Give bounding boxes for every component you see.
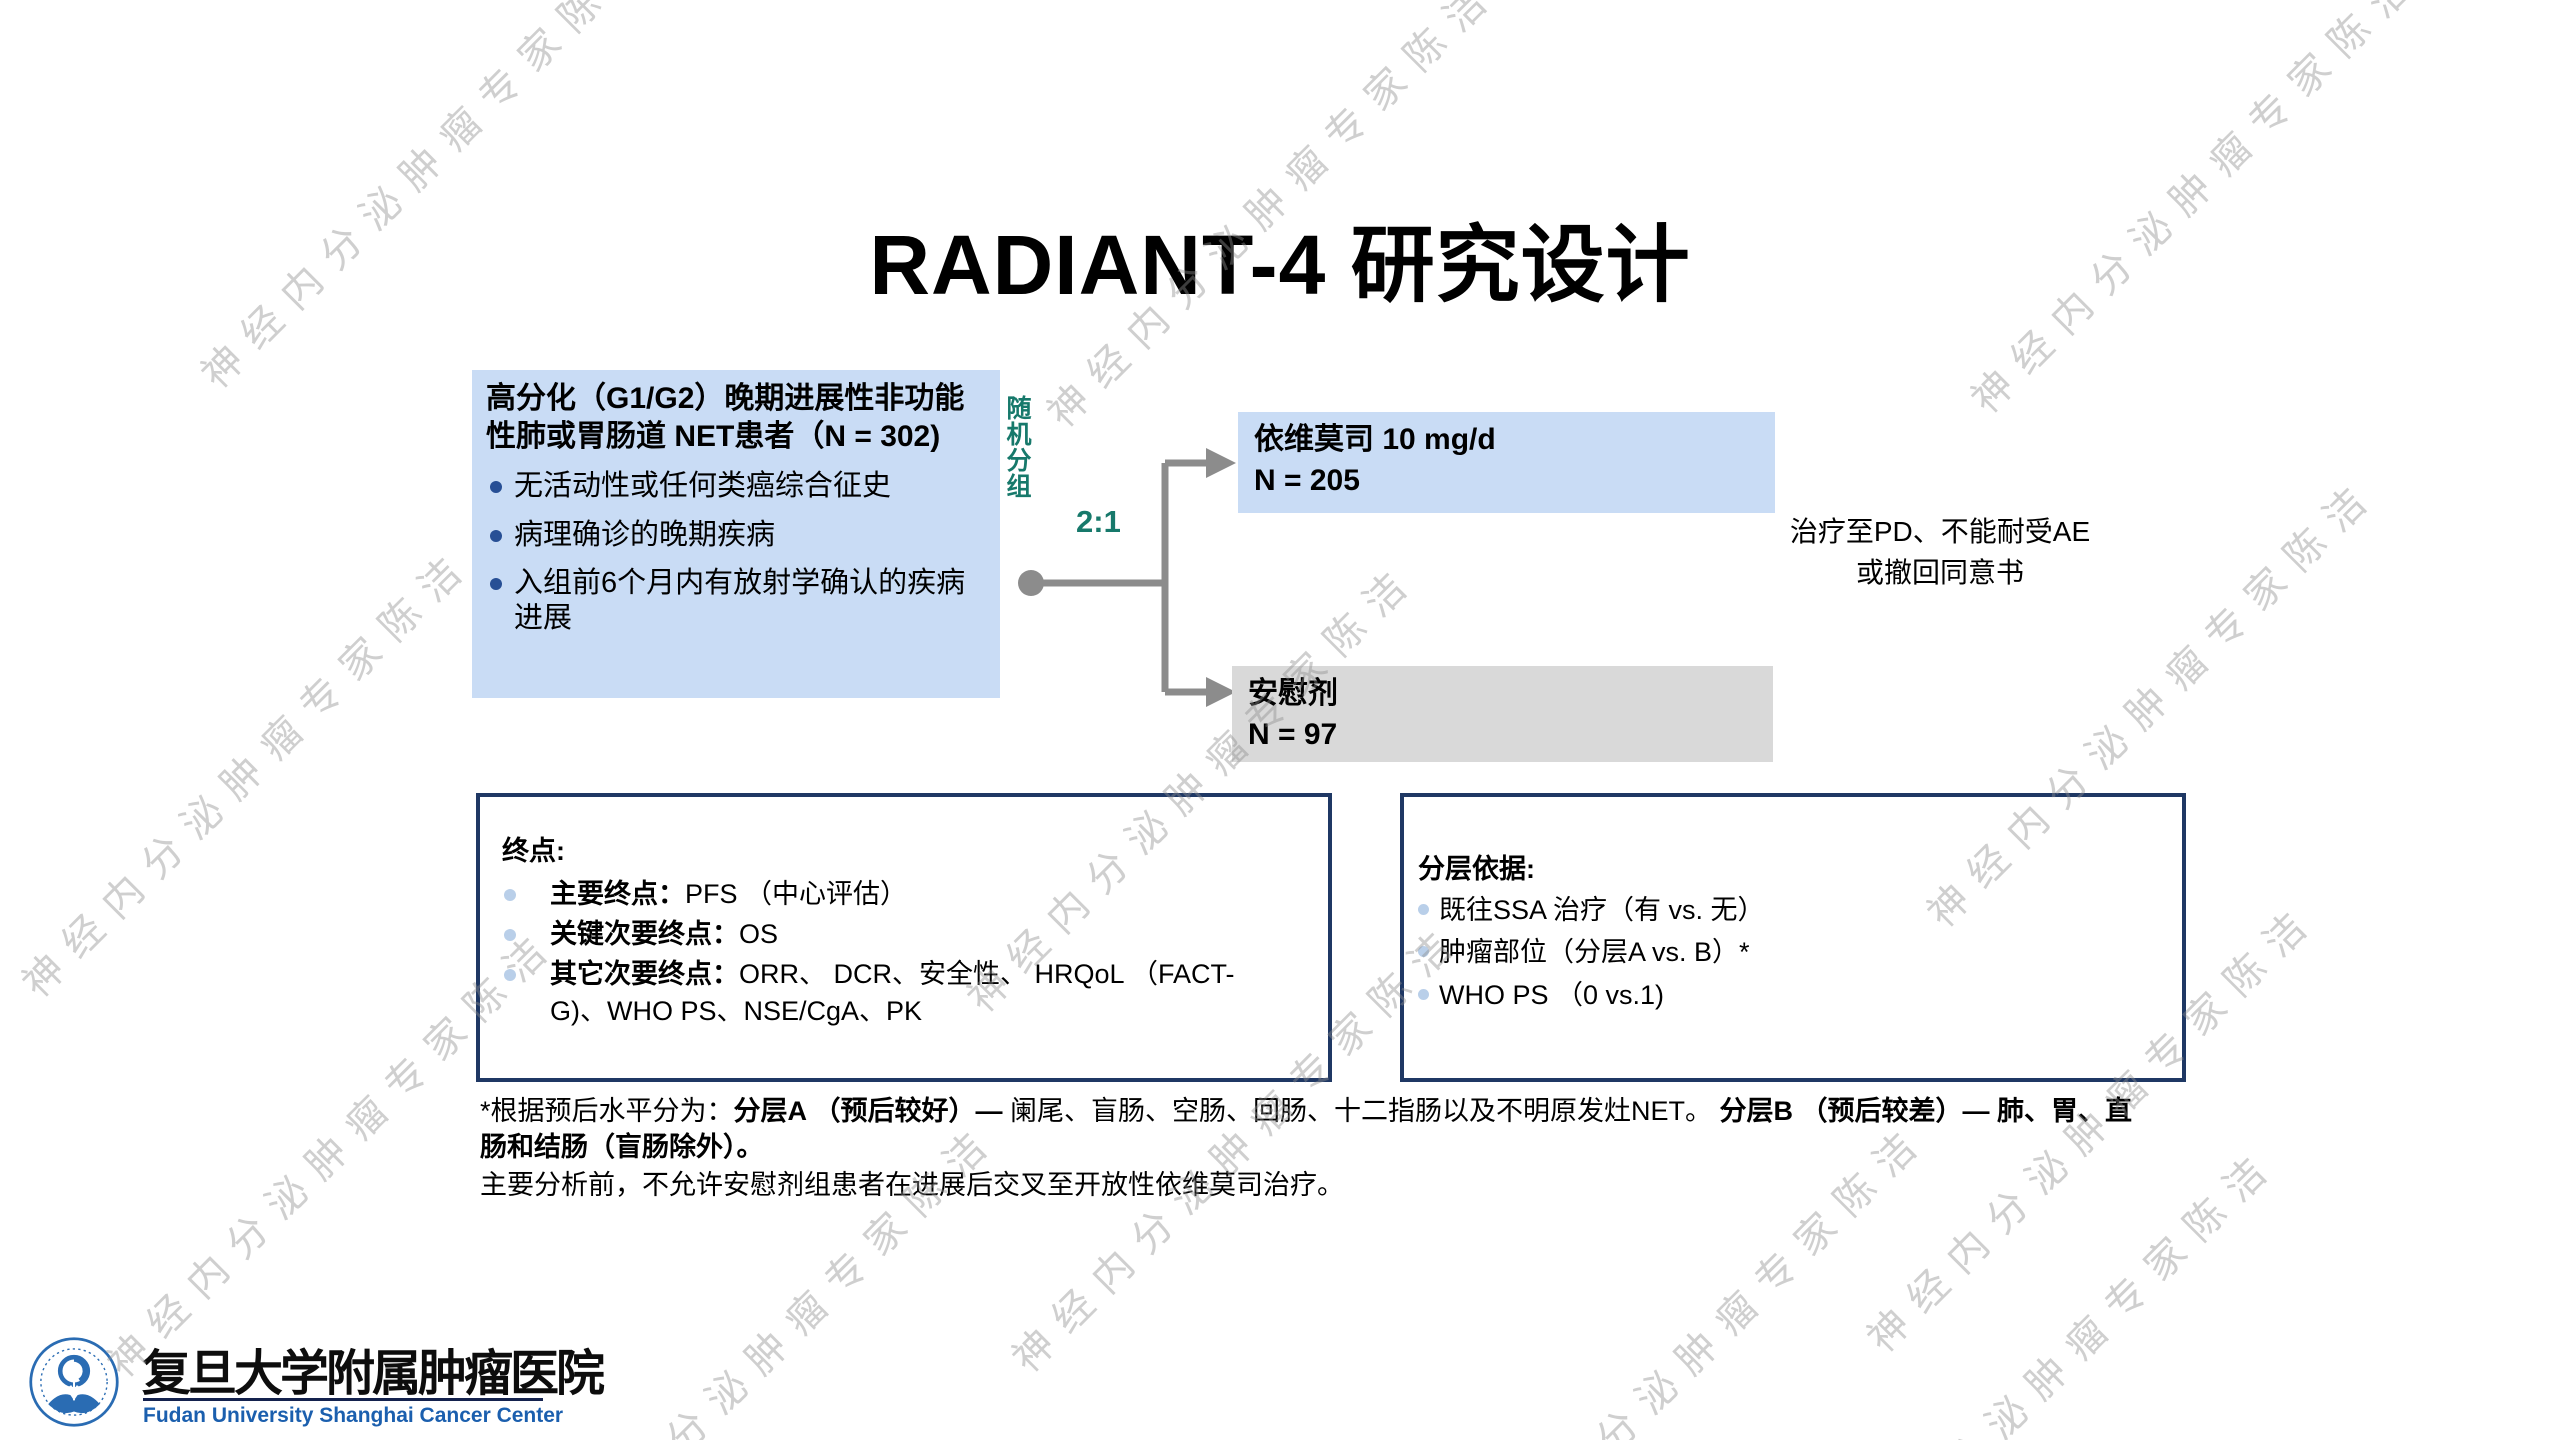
bullet-icon bbox=[504, 889, 516, 901]
footnote-segment: 分层A （预后较好）— bbox=[734, 1096, 1011, 1126]
stratification-text: WHO PS （0 vs.1) bbox=[1439, 977, 1664, 1013]
stratification-text: 既往SSA 治疗（有 vs. 无） bbox=[1439, 892, 1765, 928]
slide: RADIANT-4 研究设计 高分化（G1/G2）晚期进展性非功能性肺或胃肠道 … bbox=[0, 0, 2560, 1440]
list-item: 既往SSA 治疗（有 vs. 无） bbox=[1418, 892, 2164, 928]
arm-n: N = 205 bbox=[1254, 460, 1759, 501]
treatment-until-note: 治疗至PD、不能耐受AE 或撤回同意书 bbox=[1760, 512, 2120, 593]
stratification-box-label: 分层依据: bbox=[1418, 847, 2164, 886]
logo-divider bbox=[143, 1398, 543, 1401]
bullet-icon bbox=[504, 929, 516, 941]
patient-eligibility-box: 高分化（G1/G2）晚期进展性非功能性肺或胃肠道 NET患者（N = 302) … bbox=[472, 370, 1000, 698]
bullet-icon bbox=[1418, 946, 1429, 957]
bullet-icon bbox=[1418, 904, 1429, 915]
endpoint-value: PFS （中心评估） bbox=[685, 879, 907, 909]
list-item: 主要终点：PFS （中心评估） bbox=[502, 876, 1310, 914]
endpoint-label: 关键次要终点： bbox=[550, 919, 739, 949]
endpoints-box-label: 终点: bbox=[502, 829, 1310, 868]
bullet-text: 入组前6个月内有放射学确认的疾病进展 bbox=[514, 566, 988, 637]
stratification-list: 既往SSA 治疗（有 vs. 无） 肿瘤部位（分层A vs. B）* WHO P… bbox=[1418, 892, 2164, 1013]
bullet-icon bbox=[1418, 989, 1429, 1000]
footnote-line2: 主要分析前，不允许安慰剂组患者在进展后交叉至开放性依维莫司治疗。 bbox=[480, 1168, 2140, 1204]
treatment-note-line2: 或撤回同意书 bbox=[1760, 553, 2120, 594]
bullet-icon bbox=[504, 969, 516, 981]
footnote-segment: *根据预后水平分为： bbox=[480, 1096, 734, 1126]
arm-name: 依维莫司 10 mg/d bbox=[1254, 419, 1759, 460]
bullet-icon bbox=[490, 530, 502, 542]
footnote-segment: 阑尾、盲肠、空肠、回肠、十二指肠以及不明原发灶NET。 bbox=[1010, 1096, 1720, 1126]
hospital-name-en: Fudan University Shanghai Cancer Center bbox=[143, 1404, 563, 1428]
arm-n: N = 97 bbox=[1248, 714, 1757, 755]
bullet-text: 病理确诊的晚期疾病 bbox=[514, 518, 775, 553]
endpoint-text: 主要终点：PFS （中心评估） bbox=[550, 876, 1290, 914]
stratification-box: 分层依据: 既往SSA 治疗（有 vs. 无） 肿瘤部位（分层A vs. B）*… bbox=[1400, 793, 2186, 1082]
arm-name: 安慰剂 bbox=[1248, 673, 1757, 714]
page-title: RADIANT-4 研究设计 bbox=[0, 198, 2560, 319]
endpoints-list: 主要终点：PFS （中心评估） 关键次要终点：OS 其它次要终点：ORR、 DC… bbox=[502, 876, 1310, 1031]
list-item: 病理确诊的晚期疾病 bbox=[486, 518, 988, 553]
stratification-text: 肿瘤部位（分层A vs. B）* bbox=[1439, 934, 1750, 970]
list-item: 其它次要终点：ORR、 DCR、安全性、 HRQoL （FACT-G)、WHO … bbox=[502, 956, 1310, 1032]
list-item: 无活动性或任何类癌综合征史 bbox=[486, 469, 988, 504]
list-item: 入组前6个月内有放射学确认的疾病进展 bbox=[486, 566, 988, 637]
endpoint-value: OS bbox=[739, 919, 778, 949]
footnote-line1: *根据预后水平分为：分层A （预后较好）— 阑尾、盲肠、空肠、回肠、十二指肠以及… bbox=[480, 1094, 2140, 1166]
arm-box-everolimus: 依维莫司 10 mg/d N = 205 bbox=[1238, 412, 1775, 513]
treatment-note-line1: 治疗至PD、不能耐受AE bbox=[1760, 512, 2120, 553]
hospital-logo-emblem-icon bbox=[28, 1336, 120, 1428]
connector-line bbox=[1031, 463, 1208, 692]
endpoint-text: 其它次要终点：ORR、 DCR、安全性、 HRQoL （FACT-G)、WHO … bbox=[550, 956, 1290, 1032]
patient-box-heading: 高分化（G1/G2）晚期进展性非功能性肺或胃肠道 NET患者（N = 302) bbox=[486, 380, 978, 456]
endpoint-label: 主要终点： bbox=[550, 879, 685, 909]
list-item: 肿瘤部位（分层A vs. B）* bbox=[1418, 934, 2164, 970]
arrowhead-top-icon bbox=[1206, 448, 1236, 478]
arm-box-placebo: 安慰剂 N = 97 bbox=[1232, 666, 1773, 762]
patient-box-bullets: 无活动性或任何类癌综合征史 病理确诊的晚期疾病 入组前6个月内有放射学确认的疾病… bbox=[486, 469, 988, 637]
endpoints-box: 终点: 主要终点：PFS （中心评估） 关键次要终点：OS 其它次要终点：ORR… bbox=[476, 793, 1332, 1082]
endpoint-label: 其它次要终点： bbox=[550, 959, 739, 989]
randomization-label: 随机分组 bbox=[1004, 396, 1034, 500]
bullet-icon bbox=[490, 578, 502, 590]
bullet-icon bbox=[490, 481, 502, 493]
footnote: *根据预后水平分为：分层A （预后较好）— 阑尾、盲肠、空肠、回肠、十二指肠以及… bbox=[480, 1094, 2140, 1204]
randomization-ratio: 2:1 bbox=[1076, 504, 1121, 540]
bullet-text: 无活动性或任何类癌综合征史 bbox=[514, 469, 891, 504]
hospital-name-cn: 复旦大学附属肿瘤医院 bbox=[142, 1334, 572, 1405]
endpoint-text: 关键次要终点：OS bbox=[550, 916, 1290, 954]
list-item: WHO PS （0 vs.1) bbox=[1418, 977, 2164, 1013]
list-item: 关键次要终点：OS bbox=[502, 916, 1310, 954]
